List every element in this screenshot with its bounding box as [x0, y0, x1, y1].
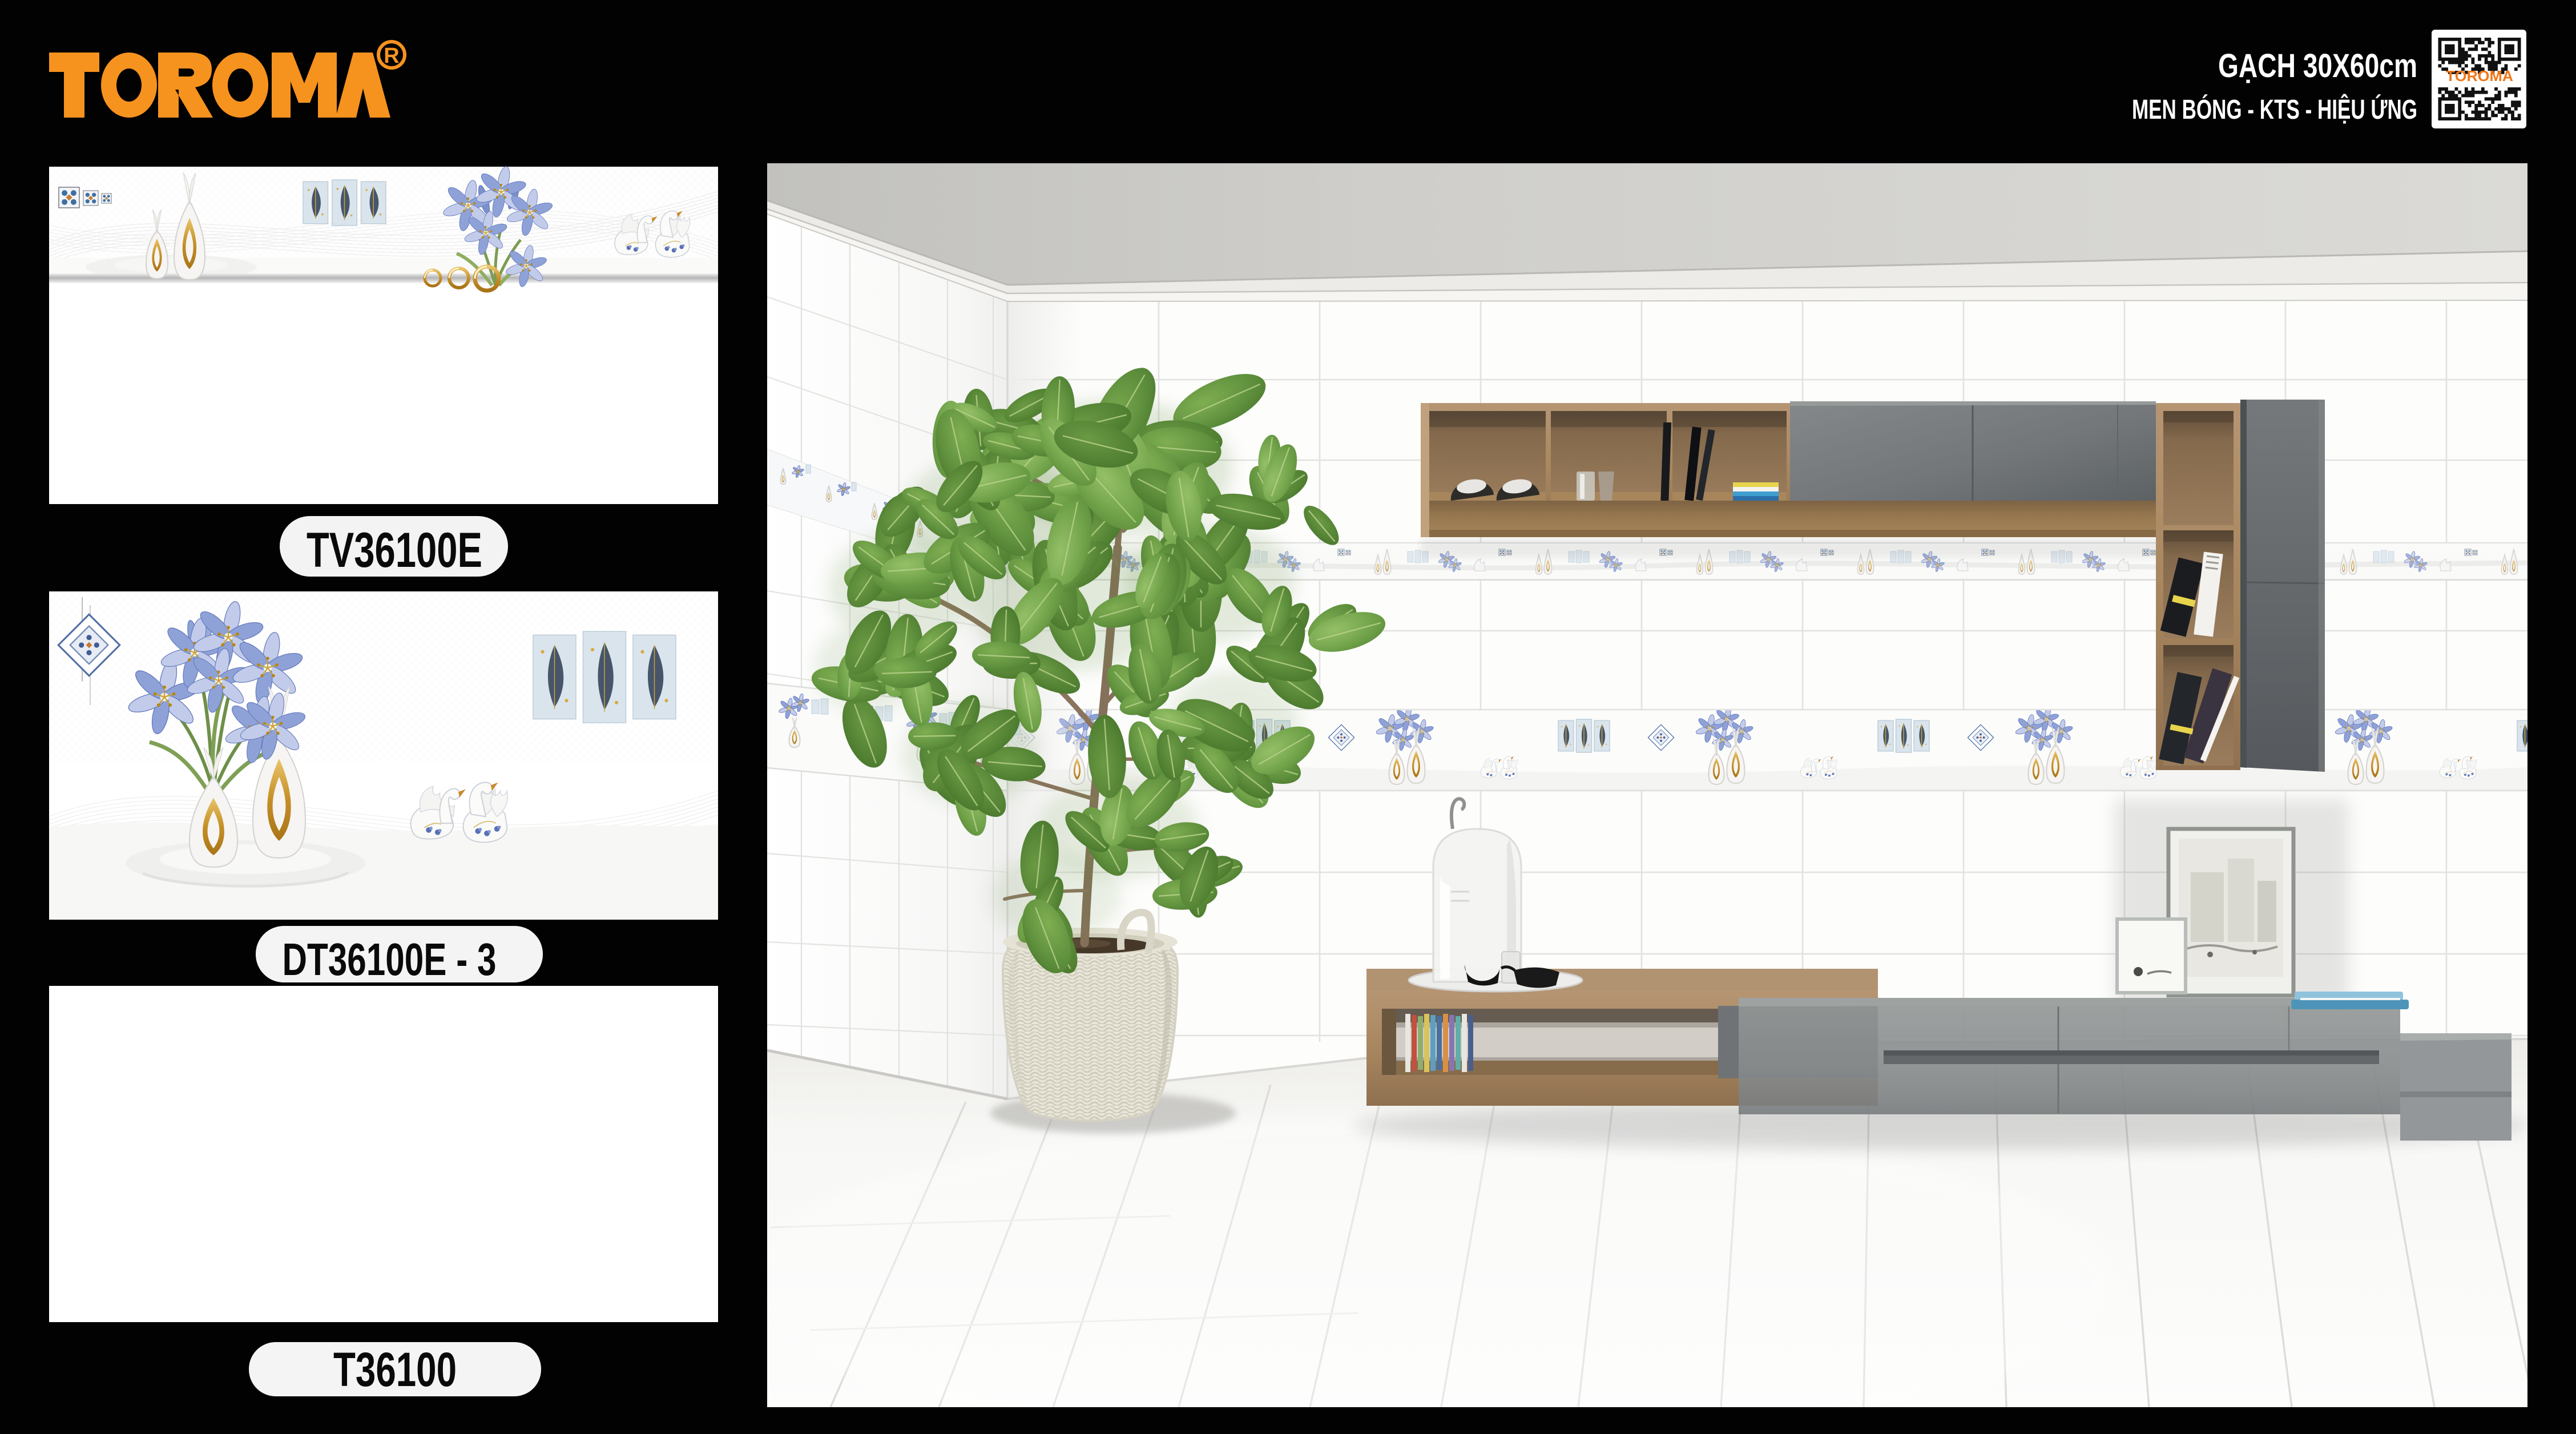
svg-text:R: R [384, 44, 399, 68]
svg-text:GẠCH 30X60cm: GẠCH 30X60cm [2218, 47, 2417, 84]
svg-text:DT36100E - 3: DT36100E - 3 [283, 934, 497, 985]
svg-text:MEN BÓNG - KTS - HIỆU ỨNG: MEN BÓNG - KTS - HIỆU ỨNG [2132, 94, 2417, 125]
svg-text:TOROMA: TOROMA [2446, 67, 2513, 84]
svg-text:T36100: T36100 [333, 1343, 457, 1396]
svg-text:TV36100E: TV36100E [307, 523, 482, 578]
